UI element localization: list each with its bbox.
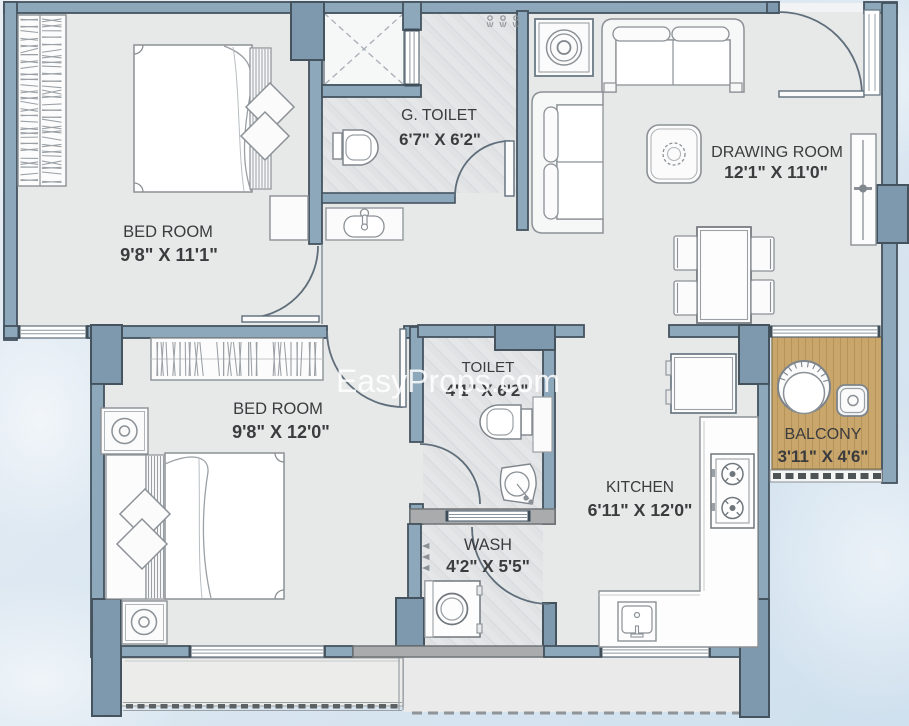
svg-text:12'1" X 11'0": 12'1" X 11'0" (724, 162, 828, 182)
svg-text:4'2" X 5'5": 4'2" X 5'5" (446, 556, 530, 576)
svg-text:EasyProps.com: EasyProps.com (336, 363, 560, 399)
svg-text:9'8" X 11'1": 9'8" X 11'1" (120, 245, 218, 265)
svg-text:BALCONY: BALCONY (785, 425, 862, 443)
svg-text:BED ROOM: BED ROOM (123, 223, 213, 241)
svg-text:WASH: WASH (464, 536, 512, 554)
svg-text:3'11" X 4'6": 3'11" X 4'6" (778, 447, 869, 466)
svg-text:6'7" X 6'2": 6'7" X 6'2" (399, 130, 481, 149)
svg-text:KITCHEN: KITCHEN (606, 479, 674, 496)
svg-text:BED ROOM: BED ROOM (233, 400, 323, 418)
svg-text:6'11" X 12'0": 6'11" X 12'0" (588, 500, 693, 520)
svg-text:DRAWING ROOM: DRAWING ROOM (711, 143, 843, 161)
svg-text:9'8" X 12'0": 9'8" X 12'0" (232, 422, 330, 442)
svg-text:G. TOILET: G. TOILET (401, 107, 477, 124)
